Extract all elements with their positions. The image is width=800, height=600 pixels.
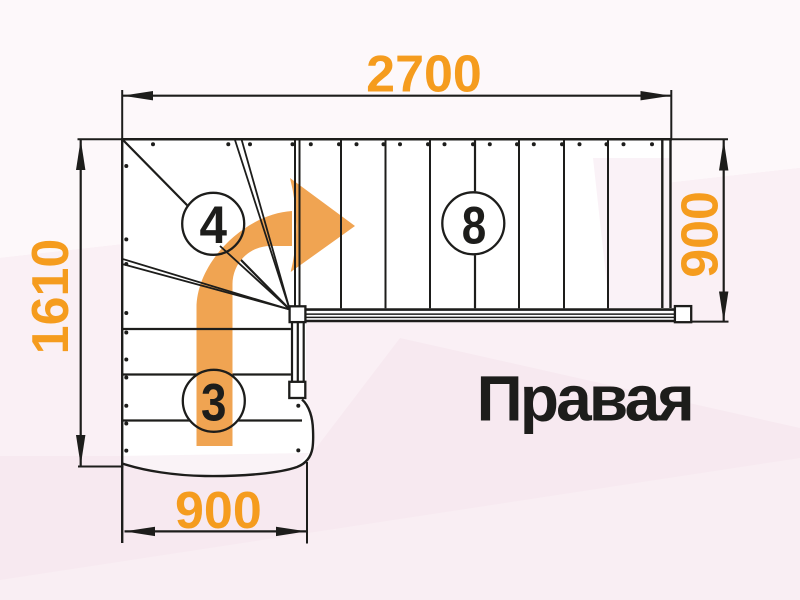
- svg-text:2700: 2700: [366, 46, 482, 104]
- svg-text:4: 4: [199, 196, 227, 255]
- svg-text:900: 900: [175, 482, 262, 540]
- svg-text:3: 3: [201, 374, 227, 433]
- svg-text:8: 8: [462, 197, 487, 256]
- svg-text:Правая: Правая: [477, 363, 692, 435]
- svg-text:900: 900: [672, 191, 730, 278]
- svg-text:1610: 1610: [22, 239, 80, 355]
